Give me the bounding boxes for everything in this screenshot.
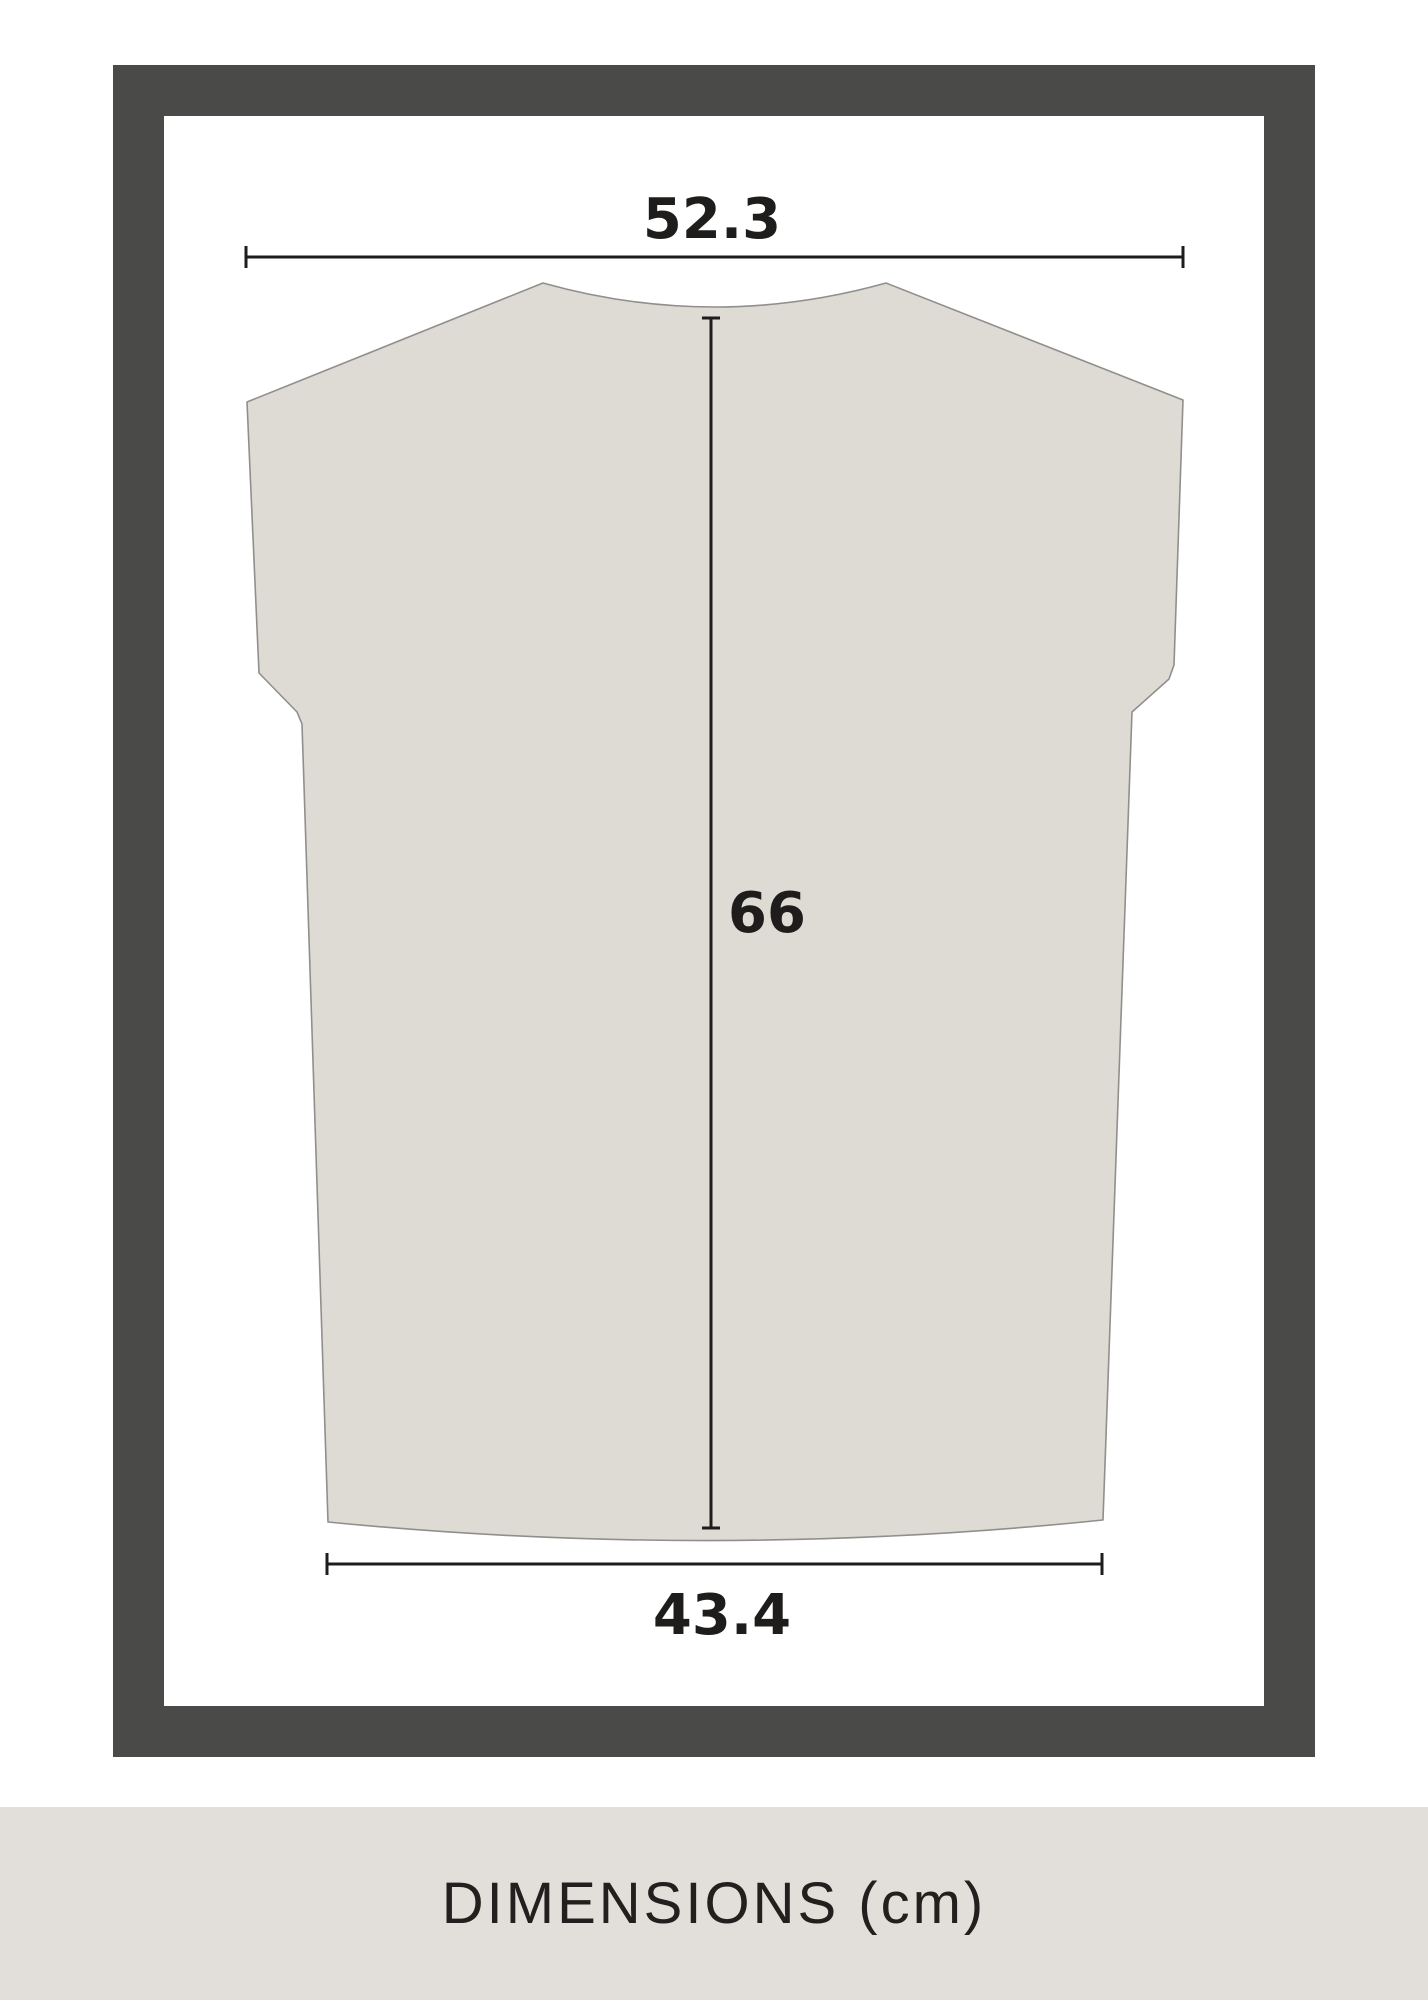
footer-bar: DIMENSIONS (cm) [0,1807,1428,2000]
garment-silhouette [247,283,1183,1541]
bottom-width-dimension: 43.4 [327,1553,1102,1648]
garment-dimensions-diagram: 52.3 66 43.4 DIMENSIONS (cm) [0,0,1428,2000]
bottom-width-label: 43.4 [653,1583,791,1648]
top-width-label: 52.3 [643,187,781,252]
diagram-canvas: 52.3 66 43.4 [0,0,1428,2000]
footer-caption: DIMENSIONS (cm) [442,1870,986,1937]
length-label: 66 [728,881,806,946]
top-width-dimension: 52.3 [246,187,1183,268]
